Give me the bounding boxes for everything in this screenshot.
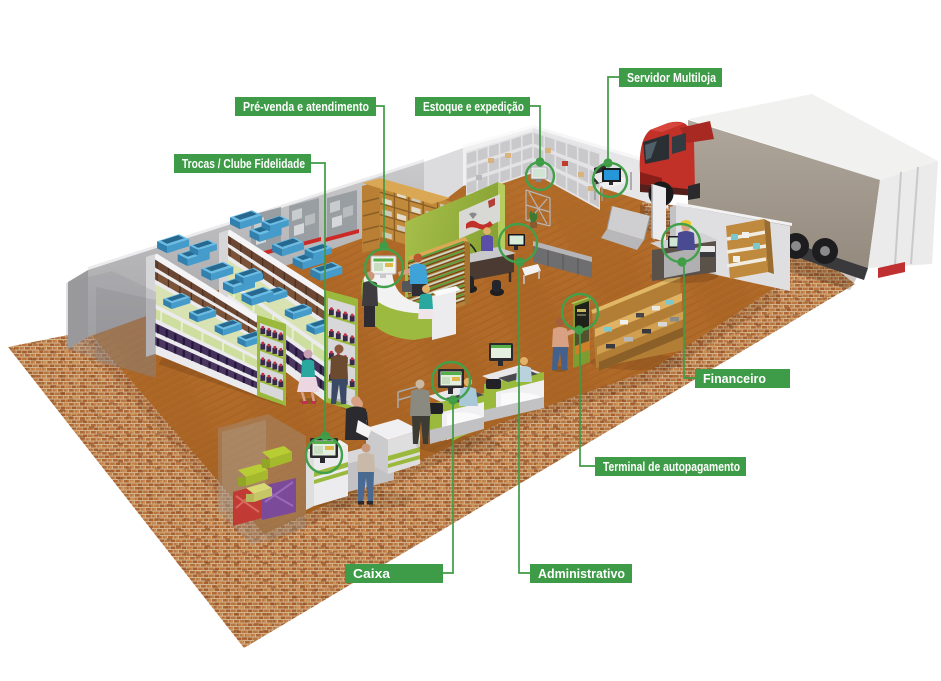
svg-text:Administrativo: Administrativo (538, 567, 625, 581)
svg-text:Estoque e expedição: Estoque e expedição (423, 100, 524, 114)
svg-text:Terminal de autopagamento: Terminal de autopagamento (603, 460, 740, 474)
svg-text:Trocas / Clube Fidelidade: Trocas / Clube Fidelidade (182, 157, 305, 171)
svg-text:Servidor Multiloja: Servidor Multiloja (627, 71, 717, 85)
svg-text:Caixa: Caixa (353, 567, 391, 581)
svg-text:Financeiro: Financeiro (703, 372, 766, 386)
svg-text:Pré-venda e atendimento: Pré-venda e atendimento (243, 100, 369, 114)
